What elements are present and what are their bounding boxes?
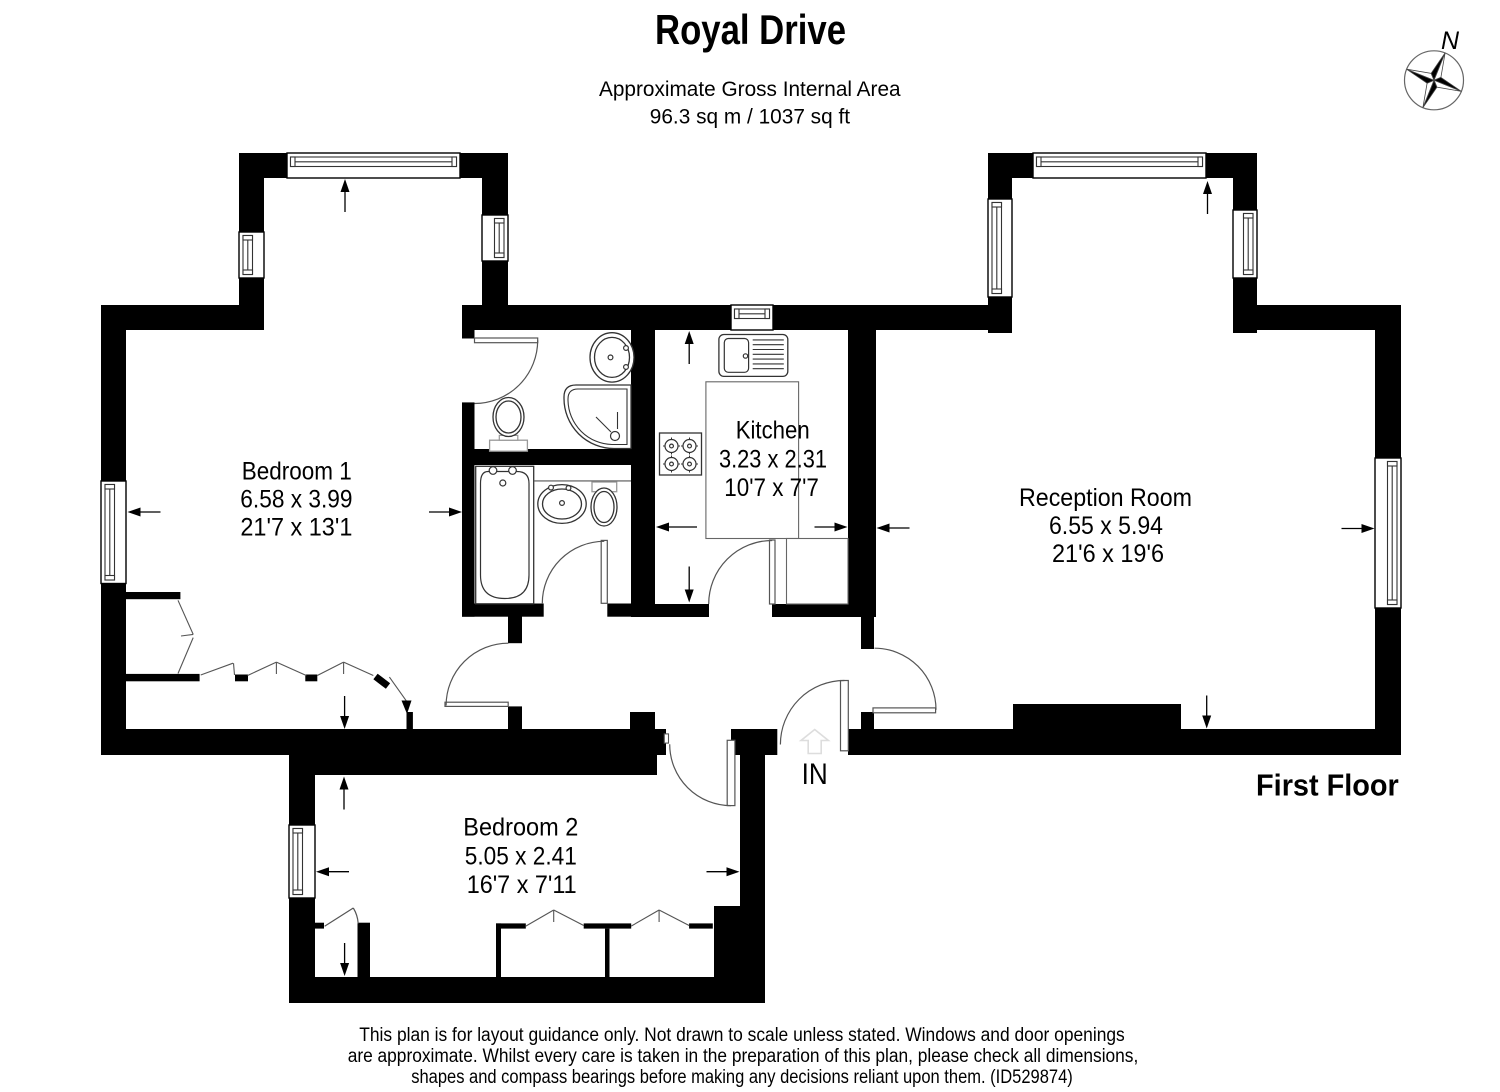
svg-text:16'7 x 7'11: 16'7 x 7'11 (467, 871, 577, 899)
svg-text:10'7 x 7'7: 10'7 x 7'7 (724, 474, 819, 502)
svg-text:Reception Room: Reception Room (1019, 484, 1192, 512)
svg-text:N: N (1441, 27, 1460, 55)
svg-text:96.3 sq m / 1037 sq ft: 96.3 sq m / 1037 sq ft (650, 104, 850, 129)
svg-text:3.23 x 2.31: 3.23 x 2.31 (719, 446, 827, 474)
svg-text:shapes and compass bearings be: shapes and compass bearings before makin… (411, 1067, 1073, 1088)
svg-text:Approximate Gross Internal Are: Approximate Gross Internal Area (599, 76, 902, 101)
svg-text:5.05 x 2.41: 5.05 x 2.41 (465, 843, 577, 871)
svg-text:6.58 x 3.99: 6.58 x 3.99 (240, 486, 352, 514)
svg-text:Kitchen: Kitchen (736, 417, 810, 445)
svg-text:Royal Drive: Royal Drive (655, 6, 846, 53)
svg-text:This plan is for layout guidan: This plan is for layout guidance only. N… (359, 1025, 1125, 1046)
svg-text:21'7 x 13'1: 21'7 x 13'1 (240, 513, 352, 541)
svg-text:are approximate. Whilst every: are approximate. Whilst every care is ta… (348, 1046, 1139, 1067)
svg-text:Bedroom 1: Bedroom 1 (242, 458, 352, 486)
svg-text:Bedroom 2: Bedroom 2 (463, 814, 578, 842)
svg-text:6.55 x 5.94: 6.55 x 5.94 (1049, 512, 1163, 540)
svg-text:IN: IN (802, 758, 828, 791)
svg-text:21'6 x 19'6: 21'6 x 19'6 (1052, 540, 1164, 568)
svg-text:First Floor: First Floor (1256, 768, 1399, 802)
